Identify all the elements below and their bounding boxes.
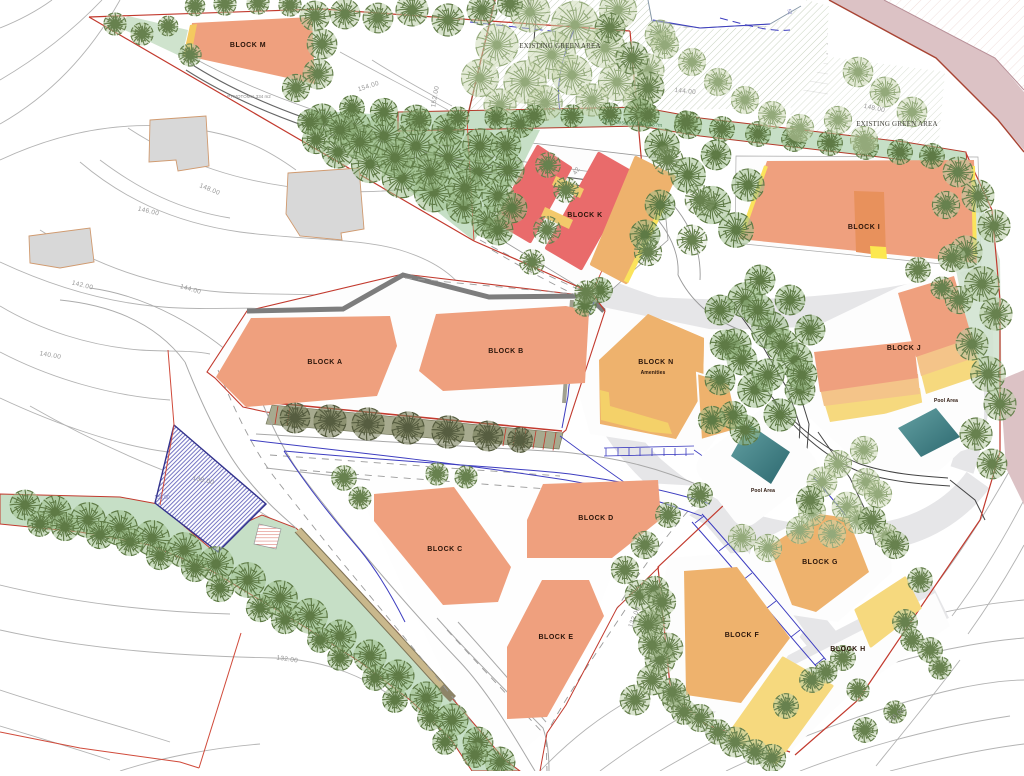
svg-text:Pool Area: Pool Area — [934, 398, 958, 404]
svg-text:BLOCK K: BLOCK K — [567, 212, 602, 219]
svg-text:BLOCK A: BLOCK A — [307, 359, 342, 366]
svg-text:BLOCK F: BLOCK F — [725, 632, 760, 639]
svg-text:BLOCK M: BLOCK M — [230, 42, 266, 49]
svg-text:BLOCK I: BLOCK I — [848, 224, 880, 231]
svg-text:BLOCK B: BLOCK B — [488, 348, 523, 355]
svg-text:Pool Area: Pool Area — [751, 488, 775, 494]
svg-text:BLOCK C: BLOCK C — [427, 546, 462, 553]
svg-text:136.00: 136.00 — [154, 495, 170, 501]
svg-text:PYMOTOMIA 334 m2: PYMOTOMIA 334 m2 — [227, 94, 271, 99]
svg-text:Amenities: Amenities — [641, 370, 666, 376]
svg-text:BLOCK D: BLOCK D — [578, 515, 613, 522]
svg-text:BLOCK J: BLOCK J — [887, 345, 921, 352]
svg-text:BLOCK E: BLOCK E — [539, 634, 574, 641]
svg-text:BLOCK N: BLOCK N — [638, 359, 673, 366]
svg-text:BLOCK G: BLOCK G — [802, 559, 838, 566]
svg-text:BLOCK H: BLOCK H — [830, 646, 865, 653]
svg-text:EXISTING GREEN AREA: EXISTING GREEN AREA — [856, 120, 938, 128]
svg-text:EXISTING GREEN AREA: EXISTING GREEN AREA — [519, 42, 601, 50]
